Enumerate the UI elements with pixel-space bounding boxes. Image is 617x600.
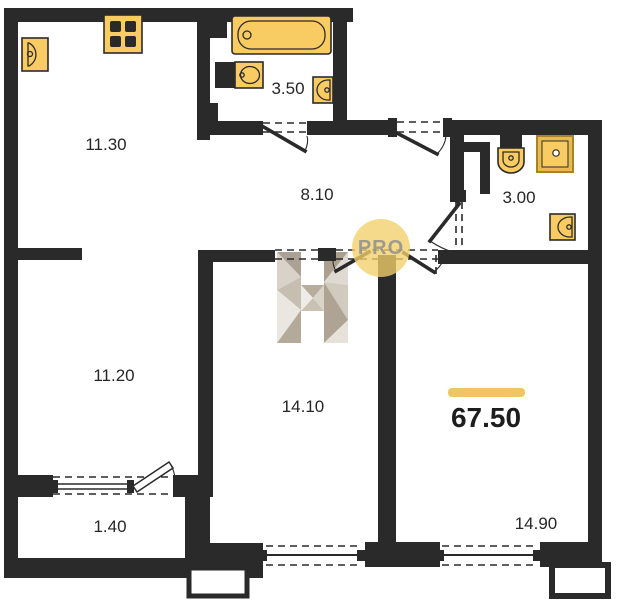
wall-mid-vertical bbox=[378, 255, 396, 545]
wall-wc-top bbox=[443, 120, 602, 135]
window-room-middle bbox=[259, 546, 365, 565]
total-area: 67.50 bbox=[448, 388, 525, 433]
bathroom-door bbox=[262, 123, 308, 151]
wc-door bbox=[430, 197, 462, 253]
label-kitchen-living: 11.30 bbox=[85, 135, 126, 154]
wall-bottom-center-block bbox=[365, 542, 440, 567]
bathtub-icon bbox=[232, 16, 331, 54]
total-area-accent-bar bbox=[448, 388, 525, 397]
wall-balcony-bottom bbox=[4, 558, 192, 578]
wall-wc-bottom bbox=[438, 250, 602, 264]
floor-plan-canvas: 11.30 3.50 8.10 3.00 11.20 14.10 1.40 14… bbox=[0, 0, 617, 600]
wall-bathtub-head bbox=[210, 8, 227, 38]
annex-bottom-right bbox=[552, 565, 608, 596]
wall-stub-livingroom bbox=[18, 248, 82, 260]
toilet-icon bbox=[498, 148, 524, 173]
wall-entrance-left bbox=[333, 120, 397, 135]
floor-plan: 11.30 3.50 8.10 3.00 11.20 14.10 1.40 14… bbox=[0, 0, 617, 600]
toilet-tank bbox=[500, 134, 522, 149]
bathroom-sink-icon bbox=[235, 62, 263, 88]
wall-right bbox=[588, 120, 602, 545]
label-wc: 3.00 bbox=[502, 188, 535, 207]
wall-bathroom-notch bbox=[202, 103, 218, 122]
window-room-right bbox=[436, 546, 541, 565]
entrance-door bbox=[391, 122, 446, 154]
label-hallway: 8.10 bbox=[300, 185, 333, 204]
bathroom-wall-sink-icon bbox=[313, 77, 333, 103]
wall-bathroom-right bbox=[333, 8, 347, 135]
watermark-letter-h bbox=[277, 252, 348, 343]
wall-bathroom-bottom-right bbox=[307, 121, 333, 135]
wall-left bbox=[4, 8, 18, 578]
shower-icon bbox=[537, 136, 573, 172]
annex-bottom-center bbox=[189, 568, 247, 596]
wall-sink-stub bbox=[215, 62, 235, 88]
label-room-right: 14.90 bbox=[515, 514, 558, 533]
doors bbox=[51, 122, 462, 494]
stove-icon bbox=[104, 15, 142, 53]
label-room-left: 11.20 bbox=[93, 366, 134, 385]
watermark-pro-text: PRO bbox=[358, 237, 404, 259]
wall-bathroom-bottom-left bbox=[197, 121, 263, 135]
wall-window-row-left bbox=[18, 475, 53, 497]
watermark-pro-badge: PRO bbox=[352, 219, 410, 277]
kitchen-sink-icon bbox=[22, 38, 48, 71]
label-room-middle: 14.10 bbox=[282, 397, 325, 416]
duct-right bbox=[480, 150, 490, 194]
wall-balcony-right bbox=[185, 497, 210, 558]
label-bathroom: 3.50 bbox=[271, 79, 304, 98]
wall-left-mid-vertical bbox=[198, 250, 213, 475]
balcony-door-window bbox=[51, 462, 180, 494]
wc-sink-icon bbox=[550, 214, 575, 240]
total-area-value: 67.50 bbox=[451, 402, 521, 433]
label-balcony: 1.40 bbox=[93, 517, 126, 536]
